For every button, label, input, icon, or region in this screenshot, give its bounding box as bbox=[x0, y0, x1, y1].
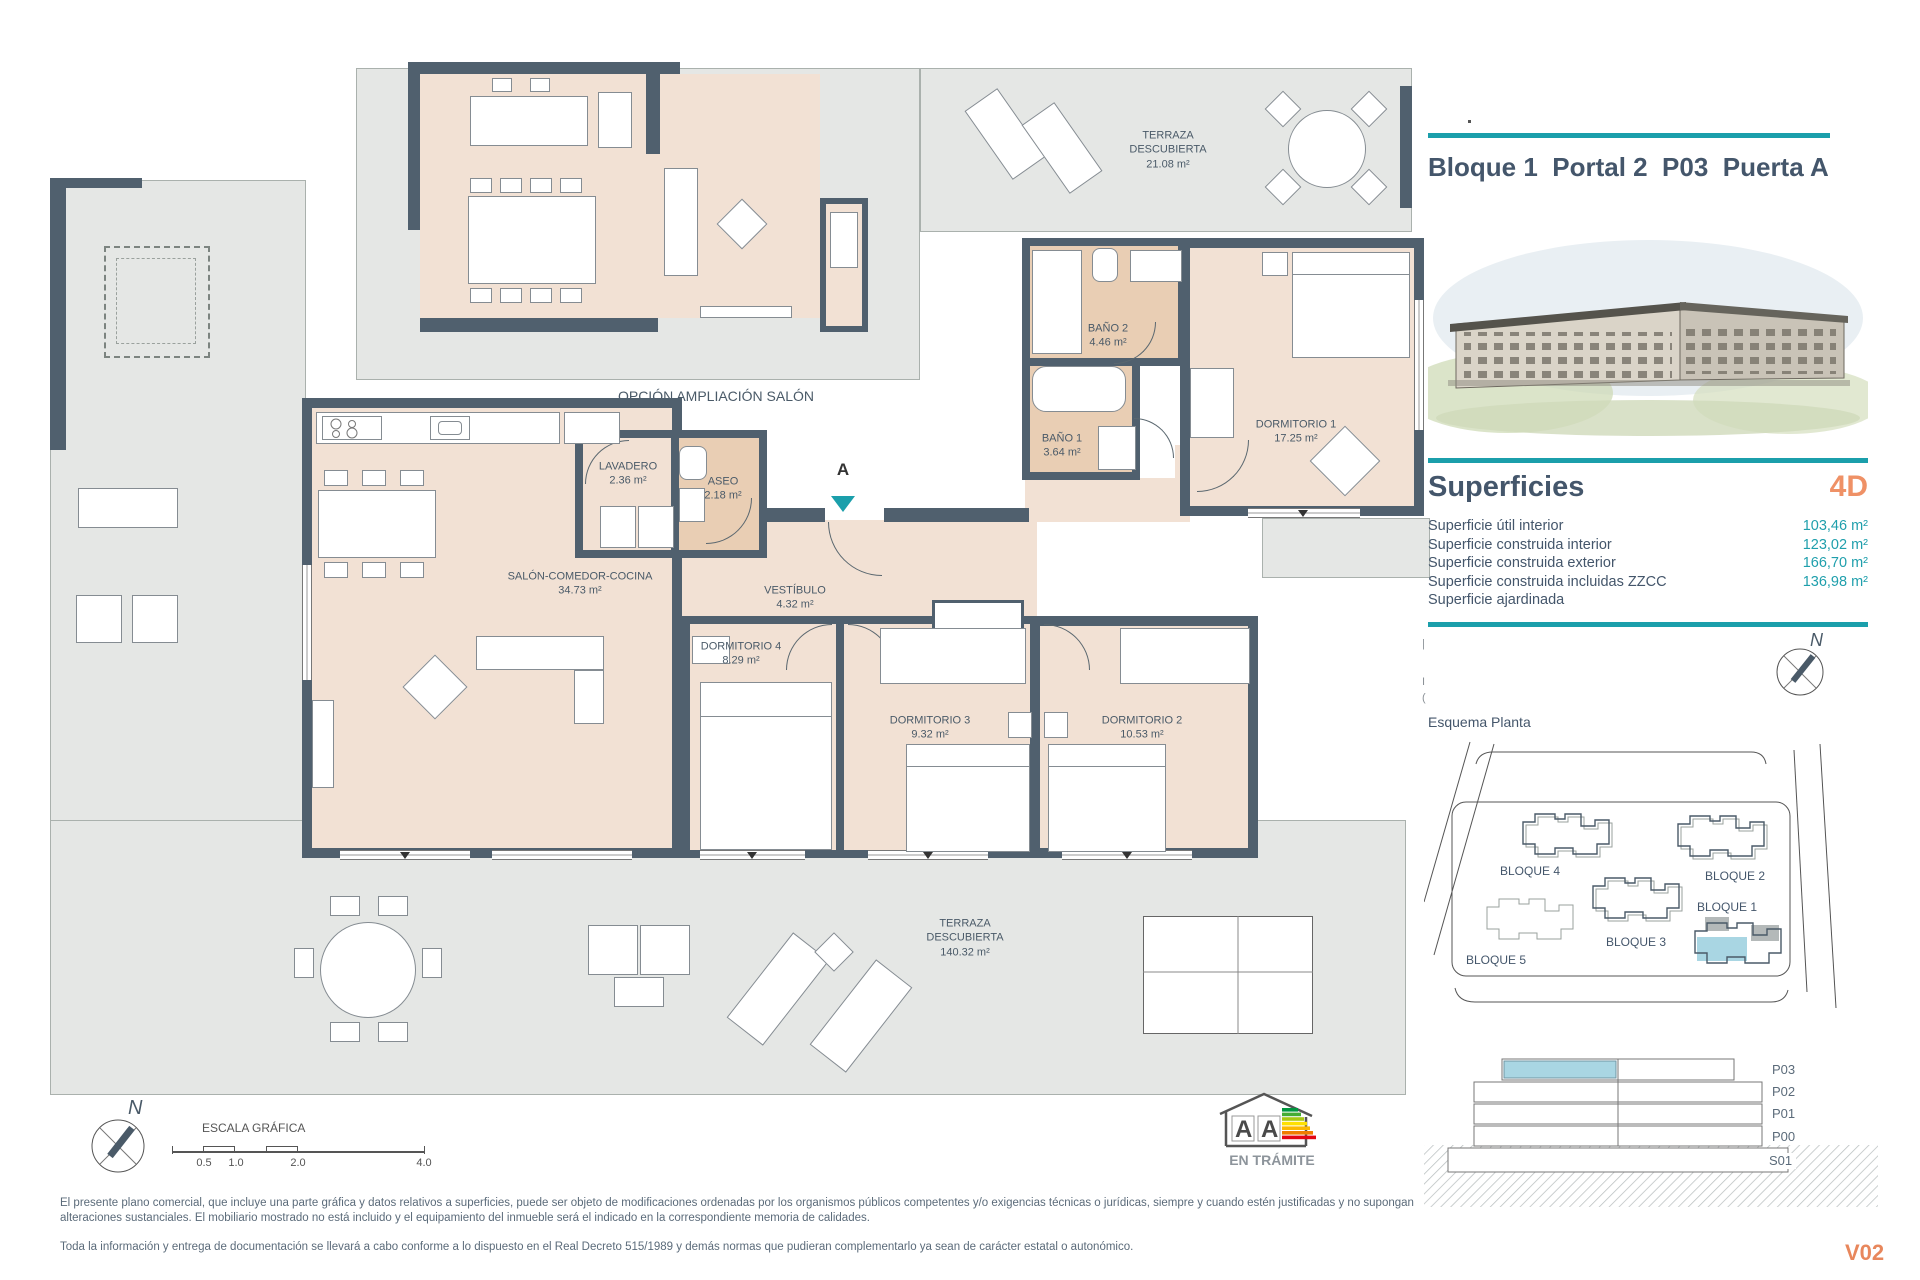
bed bbox=[1048, 744, 1166, 852]
sofa-chaise bbox=[574, 670, 604, 724]
superficies-row: Superficie construida interior 123,02 m² bbox=[1428, 536, 1868, 555]
chair bbox=[324, 470, 348, 486]
dryer bbox=[638, 506, 674, 548]
section-marker-label: A bbox=[837, 460, 849, 480]
terrace-wall bbox=[1400, 86, 1412, 208]
chair bbox=[362, 562, 386, 578]
level-label-p03: P03 bbox=[1772, 1062, 1795, 1077]
room-label-dormitorio3: DORMITORIO 39.32 m² bbox=[890, 714, 970, 743]
bloque5-label: BLOQUE 5 bbox=[1466, 953, 1526, 967]
chair bbox=[530, 178, 552, 193]
north-label: N bbox=[1810, 632, 1824, 650]
divider-rule bbox=[1428, 458, 1868, 463]
scale-tick bbox=[424, 1146, 425, 1154]
scale-tick bbox=[172, 1146, 173, 1154]
chair bbox=[330, 1022, 360, 1042]
toilet bbox=[1092, 248, 1118, 282]
round-table bbox=[1288, 110, 1366, 188]
highlighted-unit bbox=[1504, 1061, 1616, 1078]
version-label: V02 bbox=[1845, 1240, 1884, 1266]
chair bbox=[422, 948, 442, 978]
side-table bbox=[614, 977, 664, 1007]
building-illustration bbox=[1428, 228, 1868, 446]
sofa bbox=[476, 636, 604, 670]
room-label-bano2: BAÑO 24.46 m² bbox=[1088, 322, 1128, 351]
room-label-dormitorio4: DORMITORIO 48.29 m² bbox=[701, 640, 781, 669]
room-label-terraza-bottom: TERRAZA DESCUBIERTA140.32 m² bbox=[910, 917, 1020, 960]
terrace-wall bbox=[50, 178, 66, 450]
compass-icon: N bbox=[1772, 632, 1832, 698]
wall bbox=[884, 508, 1029, 522]
shower bbox=[1032, 250, 1082, 354]
chair bbox=[530, 288, 552, 303]
pergola-table bbox=[1143, 916, 1313, 1034]
room-label-vestibulo: VESTÍBULO4.32 m² bbox=[764, 584, 826, 613]
bloque1-footprint bbox=[1695, 917, 1781, 963]
legend-fragment: | bbox=[1422, 638, 1425, 650]
unit-type-label: 4D bbox=[1830, 470, 1868, 504]
washer bbox=[600, 506, 636, 548]
floorplan-sheet: OPCIÓN AMPLIACIÓN SALÓN TERRAZA DESCUBIE… bbox=[0, 0, 1920, 1280]
chair bbox=[324, 562, 348, 578]
bloque3-label: BLOQUE 3 bbox=[1606, 935, 1666, 949]
nightstand bbox=[1262, 252, 1288, 276]
legend-fragment: I bbox=[1422, 676, 1425, 688]
window bbox=[492, 850, 632, 860]
esquema-planta-label: Esquema Planta bbox=[1428, 714, 1531, 730]
superficie-value: 136,98 m² bbox=[1803, 573, 1868, 592]
tv-bench bbox=[312, 700, 334, 788]
disclaimer-text: Toda la información y entrega de documen… bbox=[60, 1240, 1432, 1255]
superficie-value: 103,46 m² bbox=[1803, 517, 1868, 536]
side-table bbox=[76, 595, 122, 643]
chair bbox=[560, 178, 582, 193]
superficies-row: Superficie construida incluidas ZZCC 136… bbox=[1428, 573, 1868, 592]
energy-letter: A bbox=[1261, 1116, 1278, 1143]
scale-tick-label: 1.0 bbox=[228, 1157, 243, 1169]
wardrobe bbox=[1190, 368, 1234, 438]
kitchen-cabinet bbox=[598, 92, 632, 148]
annex-wall bbox=[420, 62, 680, 74]
wall bbox=[767, 508, 825, 522]
window bbox=[1414, 300, 1424, 430]
legend-fragment: ( bbox=[1422, 692, 1426, 704]
room-label-terraza-top: TERRAZA DESCUBIERTA21.08 m² bbox=[1113, 129, 1223, 172]
stool bbox=[530, 78, 550, 92]
compass-icon: N bbox=[84, 1098, 154, 1176]
bench bbox=[78, 488, 178, 528]
marker-triangle-icon bbox=[400, 852, 410, 859]
chair bbox=[362, 470, 386, 486]
side-table bbox=[588, 925, 638, 975]
bathtub bbox=[1032, 366, 1126, 412]
superficie-label: Superficie construida exterior bbox=[1428, 554, 1616, 573]
bed bbox=[700, 682, 832, 850]
room-label-salon: SALÓN-COMEDOR-COCINA34.73 m² bbox=[508, 570, 653, 599]
bloque1-label: BLOQUE 1 bbox=[1697, 900, 1757, 914]
annex-fixture bbox=[830, 212, 858, 268]
wardrobe bbox=[880, 628, 1026, 684]
level-label-p02: P02 bbox=[1772, 1084, 1795, 1099]
scale-segment bbox=[266, 1146, 298, 1152]
annex-wall bbox=[646, 62, 660, 154]
bloque5-footprint bbox=[1487, 899, 1573, 939]
bloque4-label: BLOQUE 4 bbox=[1500, 864, 1560, 878]
room-label-bano1: BAÑO 13.64 m² bbox=[1042, 432, 1082, 461]
section-marker-arrow-icon bbox=[831, 496, 855, 512]
kitchen-island bbox=[470, 96, 588, 146]
superficies-table: Superficie útil interior 103,46 m² Super… bbox=[1428, 517, 1868, 610]
chair bbox=[400, 562, 424, 578]
energy-rating-icon: A A bbox=[1216, 1088, 1328, 1150]
bloque3-footprint bbox=[1593, 878, 1679, 918]
room-label-lavadero: LAVADERO2.36 m² bbox=[599, 460, 657, 489]
dining-table bbox=[468, 196, 596, 284]
bloque4-footprint bbox=[1523, 814, 1609, 854]
chair bbox=[330, 896, 360, 916]
superficie-label: Superficie construida incluidas ZZCC bbox=[1428, 573, 1667, 592]
chair bbox=[378, 896, 408, 916]
washbasin bbox=[679, 488, 705, 522]
hall-floor bbox=[1025, 478, 1190, 522]
energy-letter: A bbox=[1235, 1116, 1252, 1143]
scale-segment bbox=[203, 1146, 235, 1152]
sofa bbox=[664, 168, 698, 276]
chair bbox=[500, 178, 522, 193]
marker-triangle-icon bbox=[747, 852, 757, 859]
terrace-wall bbox=[50, 178, 142, 188]
dining-table bbox=[318, 490, 436, 558]
nightstand bbox=[1008, 712, 1032, 738]
round-table bbox=[320, 922, 416, 1018]
bed bbox=[906, 744, 1030, 852]
superficie-label: Superficie útil interior bbox=[1428, 517, 1563, 536]
annex-wall bbox=[420, 318, 658, 332]
stool bbox=[492, 78, 512, 92]
level-label-p00: P00 bbox=[1772, 1129, 1795, 1144]
scale-label: ESCALA GRÁFICA bbox=[202, 1121, 305, 1135]
divider-rule bbox=[1428, 622, 1868, 627]
marker-triangle-icon bbox=[1122, 852, 1132, 859]
scale-tick-label: 0.5 bbox=[196, 1157, 211, 1169]
window bbox=[302, 565, 312, 680]
kitchen-cabinet bbox=[564, 412, 620, 444]
pergola-outline-inner bbox=[116, 258, 196, 344]
page-title: Bloque 1 Portal 2 P03 Puerta A bbox=[1428, 152, 1868, 183]
chair bbox=[470, 178, 492, 193]
room-label-dormitorio2: DORMITORIO 210.53 m² bbox=[1102, 714, 1182, 743]
superficies-row: Superficie construida exterior 166,70 m² bbox=[1428, 554, 1868, 573]
chair bbox=[400, 470, 424, 486]
door-arc bbox=[1134, 418, 1174, 458]
superficies-heading: Superficies bbox=[1428, 471, 1584, 504]
side-table bbox=[640, 925, 690, 975]
sink-basin bbox=[438, 421, 462, 435]
side-table bbox=[132, 595, 178, 643]
nightstand bbox=[1044, 712, 1068, 738]
washbasin bbox=[1098, 426, 1136, 470]
superficie-label: Superficie ajardinada bbox=[1428, 591, 1564, 610]
room-label-dormitorio1: DORMITORIO 117.25 m² bbox=[1256, 418, 1336, 447]
scale-tick-label: 4.0 bbox=[416, 1157, 431, 1169]
superficie-value: 166,70 m² bbox=[1803, 554, 1868, 573]
bloque2-footprint bbox=[1678, 816, 1764, 856]
toilet bbox=[679, 446, 707, 480]
chair bbox=[470, 288, 492, 303]
bloque2-label: BLOQUE 2 bbox=[1705, 869, 1765, 883]
disclaimer-text: El presente plano comercial, que incluye… bbox=[60, 1196, 1432, 1226]
level-label-s01: S01 bbox=[1769, 1153, 1792, 1168]
bed bbox=[1292, 252, 1410, 358]
level-label-p01: P01 bbox=[1772, 1106, 1795, 1121]
tv-bench bbox=[700, 306, 792, 318]
energy-status: EN TRÁMITE bbox=[1212, 1152, 1332, 1168]
room-label-aseo: ASEO2.18 m² bbox=[704, 475, 741, 504]
marker-triangle-icon bbox=[923, 852, 933, 859]
level-s01 bbox=[1448, 1148, 1788, 1172]
site-plan: BLOQUE 4 BLOQUE 2 BLOQUE 5 BLOQUE 3 BLOQ… bbox=[1424, 740, 1912, 1040]
chair bbox=[500, 288, 522, 303]
superficies-row: Superficie ajardinada bbox=[1428, 591, 1868, 610]
terrace-side-small bbox=[1262, 518, 1430, 578]
chair bbox=[294, 948, 314, 978]
superficie-value: 123,02 m² bbox=[1803, 536, 1868, 555]
superficies-row: Superficie útil interior 103,46 m² bbox=[1428, 517, 1868, 536]
chair bbox=[560, 288, 582, 303]
north-label: N bbox=[128, 1098, 143, 1119]
washbasin bbox=[1130, 250, 1182, 282]
superficie-label: Superficie construida interior bbox=[1428, 536, 1612, 555]
annex-wall bbox=[408, 62, 420, 230]
building-section: P03 P02 P01 P00 S01 bbox=[1424, 1045, 1884, 1210]
wardrobe bbox=[1120, 628, 1250, 684]
cooktop-icon bbox=[322, 416, 382, 440]
divider-rule bbox=[1428, 133, 1830, 138]
marker-triangle-icon bbox=[1298, 510, 1308, 517]
chair bbox=[378, 1022, 408, 1042]
dot bbox=[1468, 120, 1471, 123]
scale-tick-label: 2.0 bbox=[290, 1157, 305, 1169]
